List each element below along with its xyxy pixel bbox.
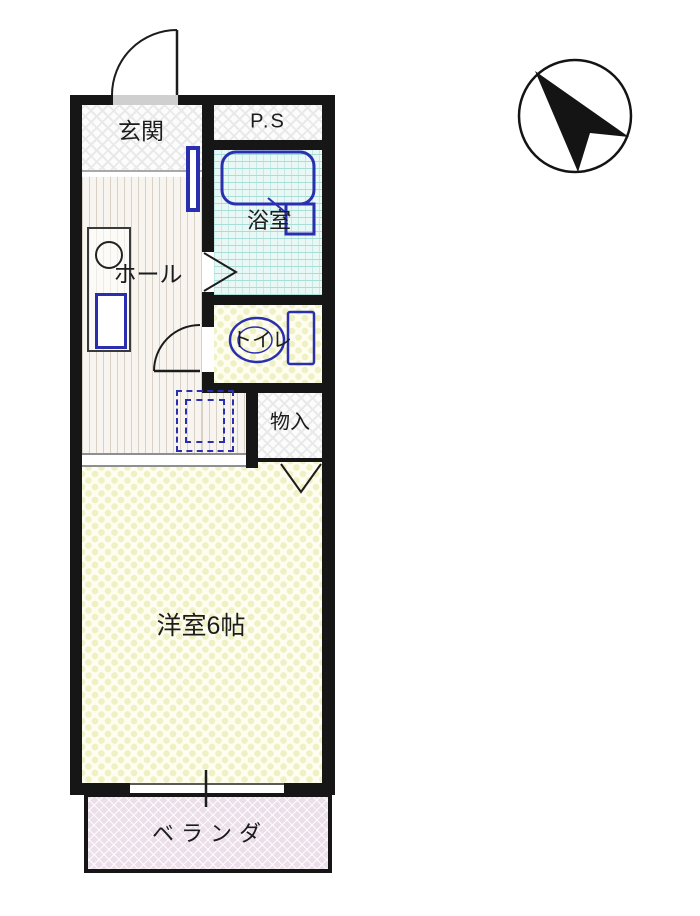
wall-top xyxy=(70,95,335,105)
label-hall: ホール xyxy=(114,255,183,289)
label-veranda: ベランダ xyxy=(152,816,268,848)
hall-cabinet xyxy=(186,146,200,212)
kitchen-sink xyxy=(95,293,127,349)
label-storage: 物入 xyxy=(270,406,310,435)
wall-center-upper xyxy=(202,105,214,252)
floor-plan-canvas: 玄関 P.S 浴室 ホール トイレ 物入 洋室6帖 ベランダ xyxy=(0,0,700,916)
toilet-door-opening xyxy=(202,327,214,372)
compass-circle xyxy=(519,60,631,172)
label-bathroom: 浴室 xyxy=(247,203,291,235)
wall-under-pipe-space xyxy=(202,140,335,150)
compass-north-arrow-icon xyxy=(535,71,629,172)
label-western-room: 洋室6帖 xyxy=(157,606,246,642)
entrance-door-arc xyxy=(112,30,177,95)
storage-bottom-edge xyxy=(258,458,322,462)
wall-bath-toilet xyxy=(202,295,335,305)
label-toilet: トイレ xyxy=(232,324,292,353)
entrance-door-sill xyxy=(113,95,178,105)
label-genkan: 玄関 xyxy=(118,112,164,146)
bathroom-door-opening xyxy=(202,252,214,292)
hall-room-sliding-door xyxy=(82,453,246,467)
wall-storage-stub xyxy=(246,393,258,468)
label-pipe-space: P.S xyxy=(250,111,286,134)
wall-left xyxy=(70,95,82,795)
wall-right xyxy=(322,95,335,795)
washing-machine-space-inner xyxy=(185,399,225,443)
